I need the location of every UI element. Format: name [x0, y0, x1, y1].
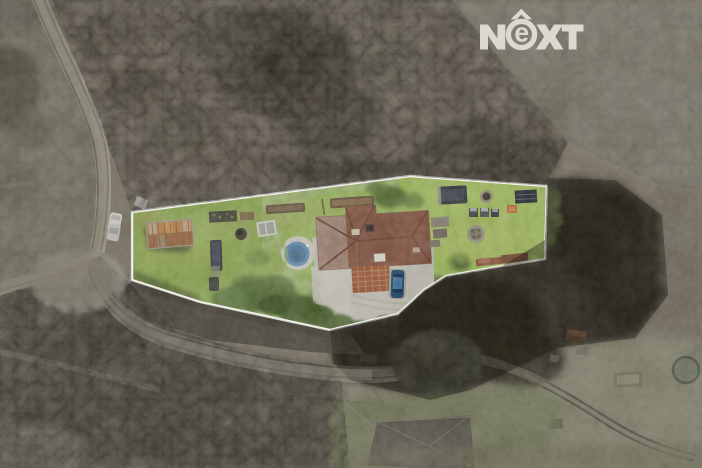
svg-text:e: e: [514, 18, 529, 48]
